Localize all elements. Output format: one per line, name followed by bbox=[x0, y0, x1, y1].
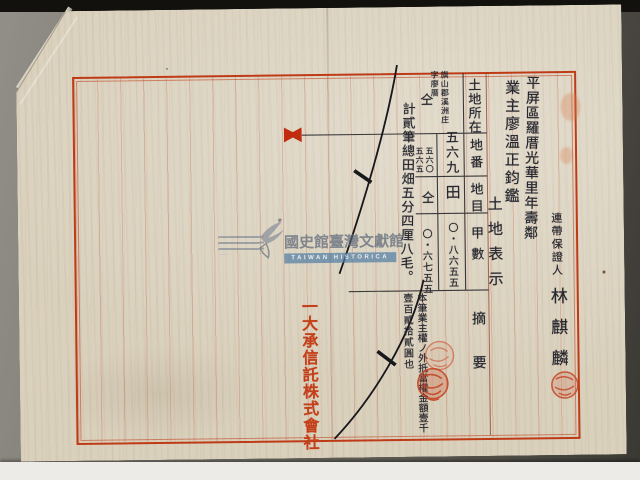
header-lot: 地番 bbox=[468, 138, 481, 172]
guarantor-label: 連帶保證人 bbox=[551, 212, 563, 277]
entry1-area: 〇・八六五五 bbox=[446, 222, 457, 288]
header-summary: 摘要 bbox=[471, 311, 486, 399]
document-paper: 平屏區羅厝光華里年壽鄰 業主廖溫正鈞鑑 土地表示 連帶保證人 林麒麟 土地所在 … bbox=[15, 4, 626, 461]
ink-bleed-stain bbox=[560, 93, 580, 121]
scanned-document-view: 平屏區羅厝光華里年壽鄰 業主廖溫正鈞鑑 土地表示 連帶保證人 林麒麟 土地所在 … bbox=[0, 0, 640, 480]
company-name-column: 一大承信託株式會社 bbox=[300, 298, 318, 451]
header-location: 土地所在 bbox=[466, 78, 480, 134]
entry1-lot: 五六九 bbox=[444, 130, 458, 175]
section-title: 土地表示 bbox=[487, 196, 503, 296]
entry2-area: 〇・六七五五 bbox=[420, 229, 431, 295]
scanner-bed-bottom-strip bbox=[0, 462, 640, 480]
entry2-ditto-location: 仝 bbox=[418, 93, 431, 106]
entry2-lot-line2: 五六五 bbox=[415, 147, 423, 174]
address-column: 平屏區羅厝光華里年壽鄰 bbox=[523, 75, 539, 240]
paper-speck bbox=[602, 271, 605, 274]
addressee-column: 業主廖溫正鈞鑑 bbox=[504, 80, 520, 206]
entry2-lot: 五六〇 五六五 bbox=[415, 147, 433, 174]
entry1-location-line1: 旗山郡溪洲庄 bbox=[440, 70, 449, 124]
entry1-location: 旗山郡溪洲庄 字廖厝 bbox=[430, 70, 449, 124]
company-name: 大承信託株式會社 bbox=[299, 315, 320, 451]
paper-speck bbox=[166, 68, 168, 70]
header-category: 地目 bbox=[468, 182, 481, 216]
entry2-ditto-category: 仝 bbox=[419, 191, 432, 204]
summary-note-line2: 壹百貳拾貳圓也 bbox=[401, 293, 412, 370]
guarantor-name: 林麒麟 bbox=[548, 287, 566, 380]
entry1-category: 田 bbox=[444, 184, 459, 199]
summary-note-line1: 本筆業主權ノ外抵當權金額壹千 bbox=[415, 293, 427, 433]
header-area: 甲數 bbox=[469, 226, 483, 268]
entry2-lot-line1: 五六〇 bbox=[425, 147, 433, 174]
ink-bleed-stain bbox=[560, 147, 573, 164]
company-prefix: 一 bbox=[299, 298, 318, 315]
total-note: 計貳筆總田畑五分四厘八毛。 bbox=[398, 102, 414, 284]
